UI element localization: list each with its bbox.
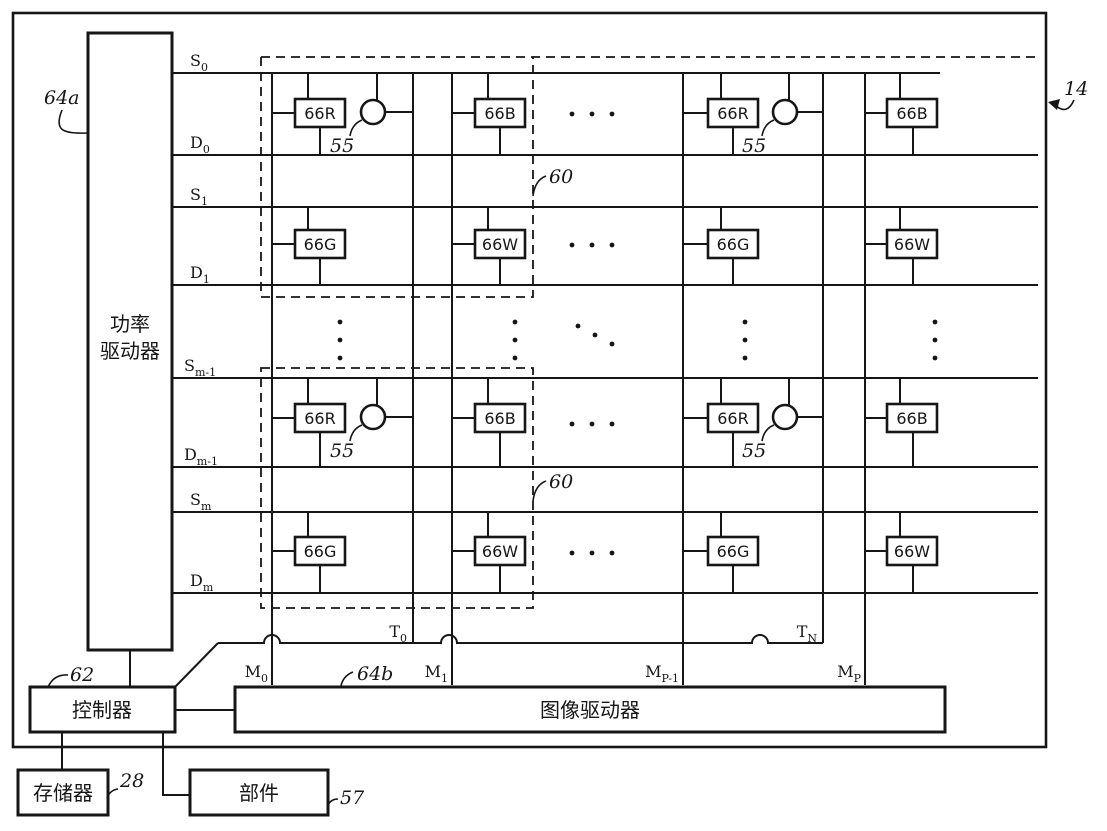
pixel-66W-label: 66W [482, 235, 518, 254]
sensor-ref-55: 55 [742, 440, 766, 462]
controller-label: 控制器 [72, 698, 132, 722]
sensor-circle [361, 100, 385, 124]
gate-routing-diagonal [175, 643, 218, 687]
image-driver-label: 图像驱动器 [540, 698, 640, 722]
sensor-ref-leader [350, 425, 362, 441]
ref-57: 57 [340, 787, 365, 809]
col-label-m1: M1 [425, 662, 448, 685]
ref-64a-leader [59, 110, 87, 133]
controller-component-link [163, 732, 190, 795]
pixel-66B-label: 66B [896, 104, 927, 123]
gate-label-t0: T0 [389, 622, 407, 645]
pixel-66B-label: 66B [484, 104, 515, 123]
ref-62-leader [48, 675, 68, 687]
row-label-dm: Dm [190, 571, 214, 594]
pixel-66R-label: 66R [304, 409, 335, 428]
power-driver-label-line2: 驱动器 [100, 339, 160, 363]
pixel-66R-label: 66R [304, 104, 335, 123]
row-label-dm1: Dm-1 [184, 445, 218, 468]
pixel-66G-label: 66G [717, 235, 750, 254]
sensor-ref-55: 55 [330, 440, 354, 462]
gate-label-tn: TN [797, 622, 818, 645]
patent-figure: 功率 驱动器 S0 D0 S1 D1 Sm-1 Dm-1 Sm Dm 60 60… [0, 0, 1107, 831]
diagram-canvas: 功率 驱动器 S0 D0 S1 D1 Sm-1 Dm-1 Sm Dm 60 60… [0, 0, 1107, 831]
sensor-circle [773, 100, 797, 124]
sensor-ref-55: 55 [742, 135, 766, 157]
gate-routing-line [218, 635, 823, 643]
sensor-circle [773, 405, 797, 429]
ref-60-top: 60 [549, 166, 573, 188]
sensor-ref-leader [350, 120, 362, 136]
pixel-66B-label: 66B [484, 409, 515, 428]
pixel-group-outline-top [261, 57, 533, 297]
pixel-row-1: 66G 66W 66G 66W [272, 207, 937, 285]
row-label-sm: Sm [190, 490, 212, 513]
pixel-66G-label: 66G [304, 235, 337, 254]
pixel-66W-label: 66W [482, 542, 518, 561]
component-label: 部件 [239, 781, 279, 805]
ref-64a: 64a [44, 87, 80, 109]
pixel-row-m1: 66R 55 66B 66R 55 66B [272, 378, 937, 467]
col-label-mp: MP [837, 662, 861, 685]
ref-64b: 64b [357, 663, 393, 685]
ref-62: 62 [70, 664, 94, 686]
sensor-circle [361, 405, 385, 429]
pixel-66B-label: 66B [896, 409, 927, 428]
row-label-d1: D1 [190, 263, 210, 286]
sensor-ref-leader [762, 120, 774, 136]
pixel-66G-label: 66G [304, 542, 337, 561]
ref-60-bottom-leader [533, 481, 546, 501]
pixel-row-m: 66G 66W 66G 66W [272, 512, 937, 593]
row-label-d0: D0 [190, 133, 210, 156]
pixel-66W-label: 66W [894, 235, 930, 254]
power-driver-label-line1: 功率 [110, 312, 150, 336]
pixel-66W-label: 66W [894, 542, 930, 561]
ref-60-bottom: 60 [549, 471, 573, 493]
ref-64b-leader [341, 672, 353, 686]
pixel-66R-label: 66R [717, 409, 748, 428]
pixel-row-0: 66R 55 66B 66R 55 66B [272, 73, 937, 157]
sensor-ref-leader [762, 425, 774, 441]
col-label-mp1: MP-1 [645, 662, 679, 685]
pixel-66R-label: 66R [717, 104, 748, 123]
row-label-s0: S0 [190, 51, 208, 74]
row-label-s1: S1 [190, 185, 208, 208]
ref-60-top-leader [533, 176, 546, 196]
sensor-ref-55: 55 [330, 135, 354, 157]
ellipsis-dots [338, 112, 938, 556]
ref-28: 28 [119, 770, 144, 792]
figure-ref-14: 14 [1064, 78, 1088, 100]
col-label-m0: M0 [245, 662, 268, 685]
memory-label: 存储器 [33, 781, 93, 805]
row-label-sm1: Sm-1 [184, 356, 216, 379]
pixel-66G-label: 66G [717, 542, 750, 561]
